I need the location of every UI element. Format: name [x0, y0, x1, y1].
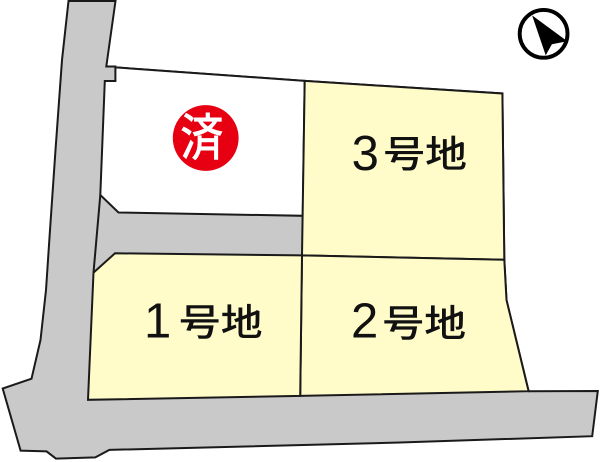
svg-text:1: 1: [144, 295, 171, 349]
svg-text:2: 2: [351, 295, 378, 349]
svg-text:3: 3: [352, 127, 379, 181]
